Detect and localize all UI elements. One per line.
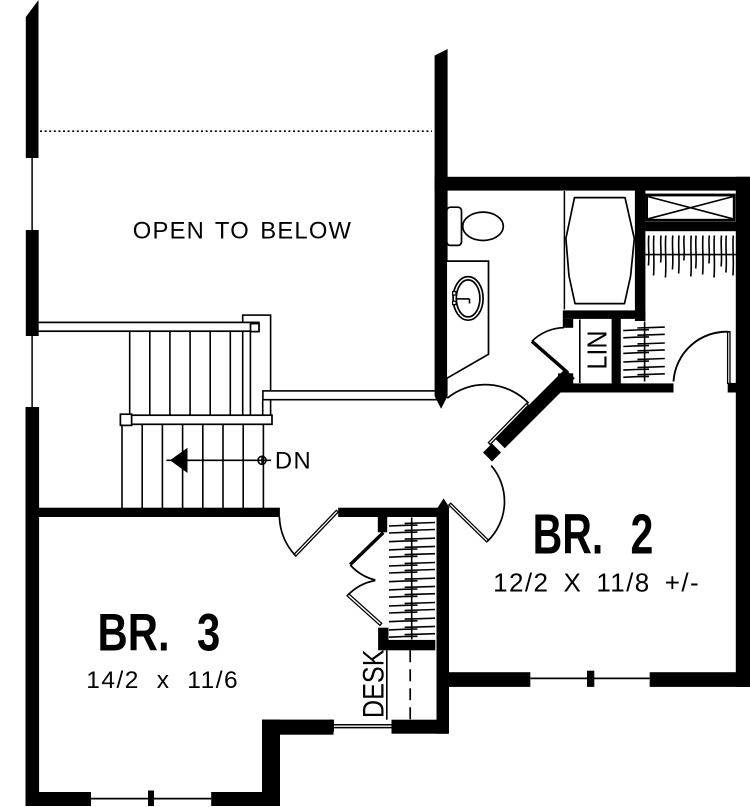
svg-text:DN: DN — [275, 447, 312, 474]
svg-text:12/2 X 11/8 +/-: 12/2 X 11/8 +/- — [493, 568, 700, 598]
svg-text:LIN: LIN — [581, 330, 613, 369]
svg-text:BR. 3: BR. 3 — [97, 604, 220, 663]
svg-text:DESK: DESK — [356, 649, 390, 718]
svg-text:BR. 2: BR. 2 — [533, 502, 654, 566]
svg-text:14/2 x 11/6: 14/2 x 11/6 — [86, 667, 239, 694]
svg-text:OPEN TO BELOW: OPEN TO BELOW — [133, 217, 352, 244]
